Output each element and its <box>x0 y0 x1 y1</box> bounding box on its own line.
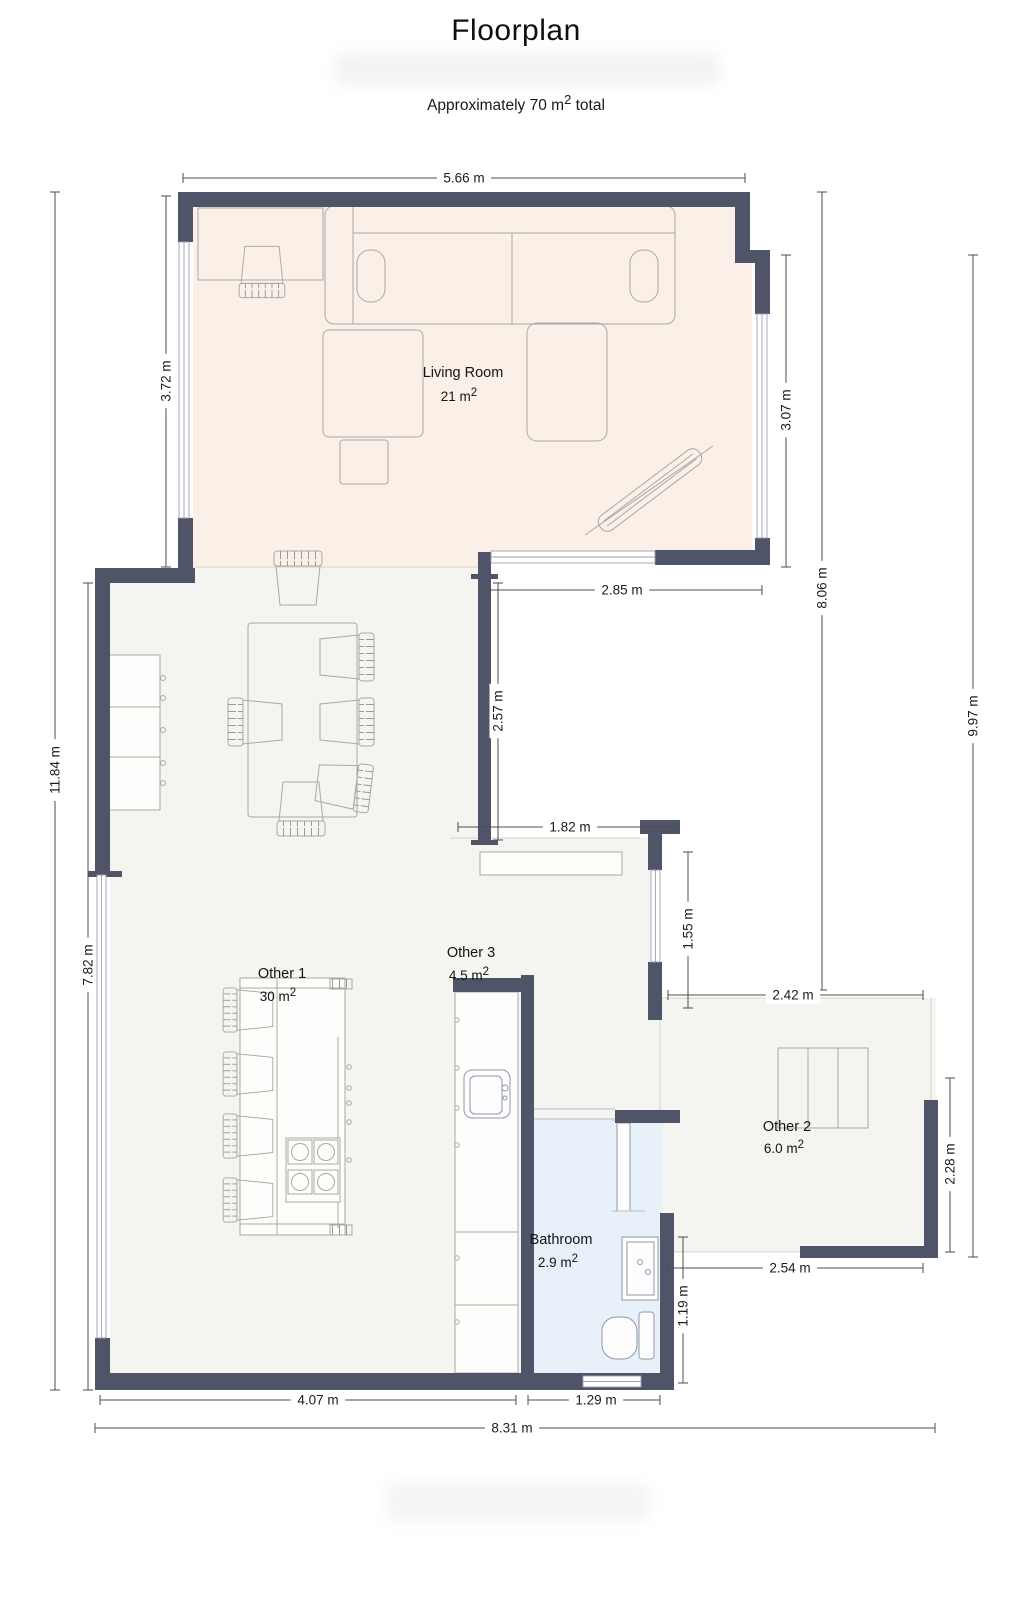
wall-segment <box>95 568 110 875</box>
dimension-right-outer: 9.97 m <box>965 255 982 1257</box>
dimension-label-living-left: 3.72 m <box>159 360 174 401</box>
dimension-living-right: 3.07 m <box>778 255 795 567</box>
wall-segment <box>478 578 491 842</box>
dimension-bottom-left: 4.07 m <box>100 1392 516 1409</box>
dimension-label-bathroom-right: 1.19 m <box>676 1285 691 1326</box>
room-area-sup: 2 <box>798 1139 804 1151</box>
wall-segment <box>735 192 750 256</box>
room-area-value: 21 m <box>441 389 471 404</box>
dimension-bottom-bathroom: 1.29 m <box>528 1392 660 1409</box>
dimension-left-inner: 7.82 m <box>80 583 97 1390</box>
door-opening <box>534 1108 615 1120</box>
room-label-other-1: Other 1 <box>258 966 306 982</box>
dimension-other2-right: 2.28 m <box>942 1078 959 1252</box>
wall-end-cap <box>471 840 498 845</box>
dimension-other3-right: 1.55 m <box>680 852 697 1008</box>
window <box>491 551 655 563</box>
room-area-sup: 2 <box>483 966 489 978</box>
room-area-value: 6.0 m <box>764 1141 798 1156</box>
dimension-label-living-bottom: 2.85 m <box>601 583 642 598</box>
dimension-label-bottom-left: 4.07 m <box>297 1393 338 1408</box>
dimension-label-right-inner: 8.06 m <box>815 567 830 608</box>
kitchen-counter <box>455 992 518 1373</box>
dimension-label-other3-right: 1.55 m <box>681 908 696 949</box>
room-area-sup: 2 <box>572 1253 578 1265</box>
dimension-bathroom-right: 1.19 m <box>675 1237 692 1383</box>
dimension-label-left-outer: 11.84 m <box>48 746 63 794</box>
stove <box>286 1138 340 1202</box>
room-label-living-room: Living Room <box>423 365 504 381</box>
wall-segment <box>521 975 534 1373</box>
wall-segment <box>615 1110 680 1123</box>
wall-segment <box>648 834 662 870</box>
dimension-label-bottom-total: 8.31 m <box>491 1421 532 1436</box>
window <box>97 875 106 1338</box>
dimension-label-living-right: 3.07 m <box>779 389 794 430</box>
dimension-top-width: 5.66 m <box>183 170 745 187</box>
wall-segment <box>178 192 193 242</box>
wall-segment <box>660 1213 674 1390</box>
room-label-bathroom: Bathroom <box>530 1232 593 1248</box>
bathroom-vanity <box>622 1237 658 1300</box>
dimension-label-other3-top: 1.82 m <box>549 820 590 835</box>
floorplan-page: Floorplan Approximately 70 m2 total <box>0 0 1032 1600</box>
kitchen-sink <box>464 1070 510 1118</box>
room-area-sup: 2 <box>290 987 296 999</box>
room-area-value: 4.5 m <box>449 968 483 983</box>
dimension-right-inner: 8.06 m <box>814 192 831 990</box>
wall-segment <box>800 1246 938 1258</box>
dimension-left-outer: 11.84 m <box>47 192 64 1390</box>
window <box>651 870 660 962</box>
wall-segment <box>755 250 770 314</box>
other3-shelf <box>480 852 622 875</box>
room-area-value: 2.9 m <box>538 1255 572 1270</box>
dimension-label-other2-right: 2.28 m <box>943 1143 958 1184</box>
room-label-other-2: Other 2 <box>763 1119 811 1135</box>
dimension-label-notch-height: 2.57 m <box>491 690 506 731</box>
window <box>583 1376 641 1387</box>
dimension-living-left: 3.72 m <box>158 196 175 567</box>
wall-segment <box>648 962 662 1020</box>
room-area-sup: 2 <box>471 387 477 399</box>
wall-segment <box>178 192 750 207</box>
wall-segment <box>178 518 193 568</box>
dimension-label-bottom-bathroom: 1.29 m <box>575 1393 616 1408</box>
wall-segment <box>655 550 770 565</box>
dimension-label-right-outer: 9.97 m <box>966 695 981 736</box>
dimension-living-bottom: 2.85 m <box>490 582 762 599</box>
floorplan-canvas: 5.66 m3.72 m3.07 m2.85 m8.06 m9.97 m11.8… <box>0 0 1032 1600</box>
dimension-label-left-inner: 7.82 m <box>81 944 96 985</box>
wall-end-cap <box>471 574 498 579</box>
room-area-value: 30 m <box>260 989 290 1004</box>
sideboard <box>108 655 166 810</box>
dimension-other2-bottom: 2.54 m <box>668 1260 923 1277</box>
toilet <box>602 1312 654 1359</box>
dimension-label-top-width: 5.66 m <box>443 171 484 186</box>
window <box>757 314 767 538</box>
dimension-notch-height: 2.57 m <box>490 583 507 840</box>
wall-segment <box>95 1338 110 1375</box>
window <box>179 242 189 518</box>
dimension-label-other2-bottom: 2.54 m <box>769 1261 810 1276</box>
dimension-bottom-total: 8.31 m <box>95 1420 935 1437</box>
wall-segment <box>924 1100 938 1258</box>
room-label-other-3: Other 3 <box>447 945 495 961</box>
dimension-label-other2-top: 2.42 m <box>772 988 813 1003</box>
